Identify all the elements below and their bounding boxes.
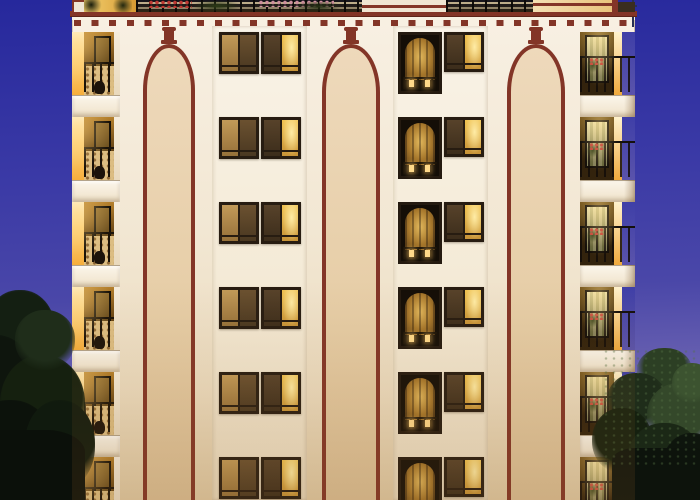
juliet-balcony-door: [398, 32, 442, 94]
door-lamp: [409, 80, 414, 87]
window-transom-bar: [222, 65, 256, 67]
door-lamp: [409, 165, 414, 172]
balcony-pillar: [114, 117, 120, 180]
balcony-slab: [72, 180, 120, 202]
roof-plant-silhouette: [84, 0, 102, 12]
balcony-slab: [72, 95, 120, 117]
juliet-balcony-door: [398, 457, 442, 500]
door-curtain-arch: [405, 208, 435, 250]
roof-rail-posts: [446, 0, 533, 12]
door-curtain-arch: [405, 293, 435, 335]
window-transom-bar: [447, 233, 481, 235]
door-curtain-arch: [405, 463, 435, 500]
door-curtain-folds: [405, 463, 435, 500]
window-transom-bar: [447, 488, 481, 490]
window-b: [444, 202, 484, 242]
door-curtain-arch: [405, 38, 435, 80]
juliet-balcony-door: [398, 287, 442, 349]
roof-dark-eave: [618, 2, 635, 12]
balcony-slab: [580, 180, 635, 202]
tree-silhouette-right: [592, 348, 700, 500]
roof-leaves: [194, 1, 240, 12]
balcony-pillar: [114, 457, 120, 500]
window-a2: [261, 32, 301, 74]
balcony-slab: [580, 265, 635, 287]
balcony-opening-right: [580, 287, 635, 350]
dentil-row: [74, 20, 634, 26]
arch-finial-base: [161, 40, 177, 44]
roof-lit-wall-left: [84, 0, 136, 12]
window-transom-bar: [264, 65, 298, 67]
hotel-building: [72, 12, 635, 500]
roof-plant-silhouette: [112, 0, 132, 12]
window-b: [444, 117, 484, 157]
door-lamp: [409, 335, 414, 342]
window-a1: [219, 32, 259, 74]
window-a1: [219, 457, 259, 499]
door-curtain-folds: [405, 208, 435, 250]
window-transom-bar: [264, 405, 298, 407]
window-transom-bar: [447, 318, 481, 320]
door-curtain-folds: [405, 123, 435, 165]
window-b: [444, 287, 484, 327]
door-lamp: [425, 80, 430, 87]
window-transom-bar: [222, 320, 256, 322]
foliage-blob: [15, 310, 75, 370]
balcony-glow: [580, 287, 622, 350]
balcony-glow: [72, 117, 120, 180]
door-lamp: [425, 250, 430, 257]
window-transom-bar: [447, 63, 481, 65]
arch-band-center: [322, 44, 380, 500]
roof-railing-left: [136, 0, 362, 12]
window-a2: [261, 457, 301, 499]
balcony-glow: [72, 32, 120, 95]
roof-wall-mid: [362, 0, 446, 12]
roof-lit-wall-right: [533, 0, 612, 12]
window-transom-bar: [447, 403, 481, 405]
window-a1: [219, 117, 259, 159]
balcony-opening-right: [580, 117, 635, 180]
tree-base-mass: [0, 430, 85, 500]
window-panel-left: [212, 26, 307, 500]
arch-band-left: [143, 44, 195, 500]
window-panel-right: [393, 26, 488, 500]
door-curtain-folds: [405, 378, 435, 420]
balcony-pillar: [114, 372, 120, 435]
door-lamp: [425, 420, 430, 427]
window-a1: [219, 202, 259, 244]
door-lamp: [425, 335, 430, 342]
window-b: [444, 457, 484, 497]
balcony-opening-right: [580, 32, 635, 95]
juliet-balcony-door: [398, 117, 442, 179]
window-a2: [261, 372, 301, 414]
door-curtain-folds: [405, 38, 435, 80]
door-lamp: [425, 165, 430, 172]
tree-silhouette-left: [0, 280, 85, 500]
roof-wall-mid-band: [362, 5, 446, 8]
roof-flowers-red: [148, 0, 192, 8]
window-transom-bar: [222, 150, 256, 152]
door-curtain-arch: [405, 378, 435, 420]
rooftop-terrace: [0, 0, 700, 12]
window-transom-bar: [222, 405, 256, 407]
roof-railing-right: [446, 0, 533, 12]
balcony-pillar: [114, 287, 120, 350]
door-lamp: [409, 250, 414, 257]
balcony-glow: [580, 202, 622, 265]
window-transom-bar: [264, 320, 298, 322]
window-a1: [219, 372, 259, 414]
window-a2: [261, 117, 301, 159]
window-a2: [261, 287, 301, 329]
window-a1: [219, 287, 259, 329]
balcony-slab: [580, 95, 635, 117]
arch-finial-base: [343, 40, 359, 44]
roof-wall-right-band: [533, 3, 612, 6]
window-transom-bar: [264, 150, 298, 152]
window-transom-bar: [264, 235, 298, 237]
window-transom-bar: [447, 148, 481, 150]
photo-hotel-facade-dusk: [0, 0, 700, 500]
window-b: [444, 372, 484, 412]
balcony-opening-left: [72, 202, 120, 265]
juliet-balcony-door: [398, 372, 442, 434]
door-curtain-folds: [405, 293, 435, 335]
balcony-pillar: [114, 202, 120, 265]
roof-leaves: [296, 2, 340, 12]
window-transom-bar: [222, 235, 256, 237]
arch-band-right: [507, 44, 565, 500]
balcony-opening-left: [72, 117, 120, 180]
arch-finial-base: [528, 40, 544, 44]
juliet-balcony-door: [398, 202, 442, 264]
door-curtain-arch: [405, 123, 435, 165]
balcony-glow: [580, 32, 622, 95]
window-a2: [261, 202, 301, 244]
balcony-glow: [72, 202, 120, 265]
balcony-opening-left: [72, 32, 120, 95]
balcony-opening-right: [580, 202, 635, 265]
parapet-corner-left: [72, 0, 84, 12]
window-transom-bar: [264, 490, 298, 492]
door-lamp: [409, 420, 414, 427]
window-b: [444, 32, 484, 72]
balcony-glow: [580, 117, 622, 180]
window-transom-bar: [222, 490, 256, 492]
balcony-pillar: [114, 32, 120, 95]
foliage-speckles: [602, 348, 700, 468]
